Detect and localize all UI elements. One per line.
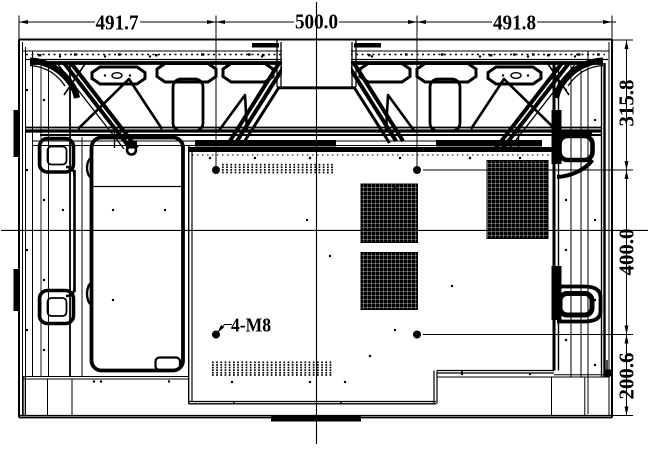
svg-text:4-M8: 4-M8: [231, 315, 271, 337]
svg-text:315.8: 315.8: [615, 80, 639, 127]
svg-text:491.7: 491.7: [96, 11, 139, 35]
svg-text:500.0: 500.0: [295, 10, 338, 34]
svg-text:491.8: 491.8: [493, 11, 536, 35]
svg-text:400.0: 400.0: [615, 229, 639, 276]
svg-text:200.6: 200.6: [615, 353, 639, 400]
